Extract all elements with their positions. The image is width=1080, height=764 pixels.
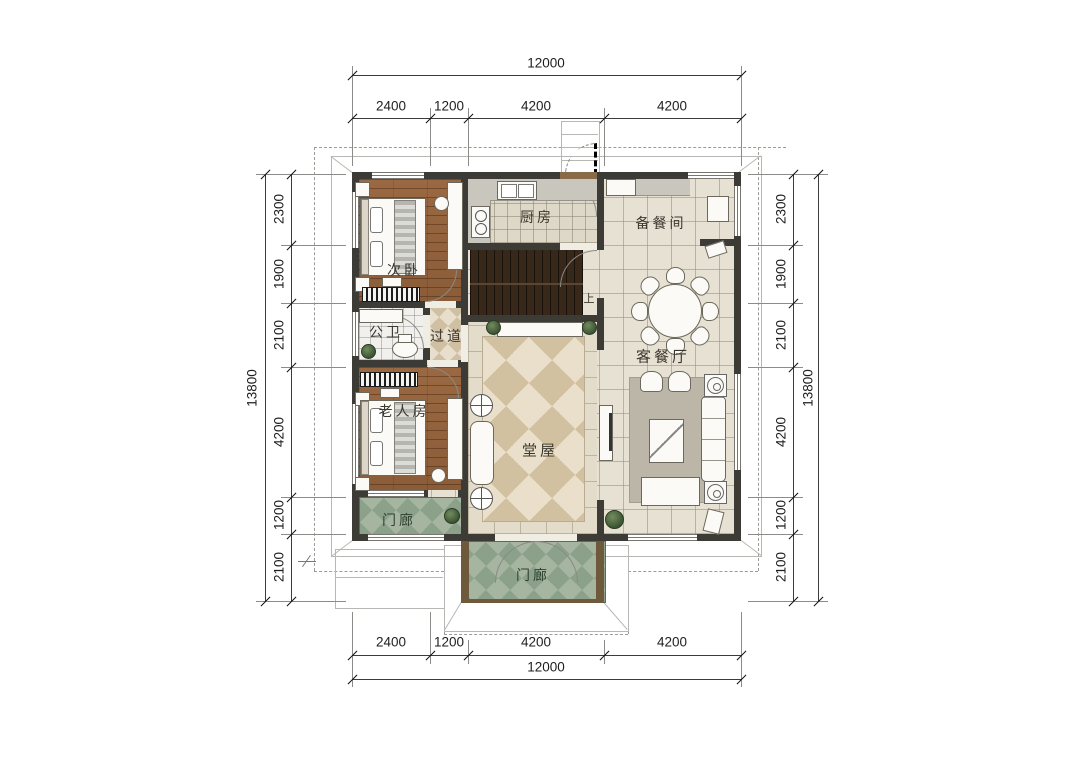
door-opening-bedroom-south [428,360,458,367]
dim-text: 2100 [272,320,287,350]
room-label-ciwo: 次卧 [387,260,421,280]
stove [471,206,490,238]
wall-bath-south [352,360,427,367]
door-opening-bedroom-north [425,301,456,308]
pantry-counter [636,179,690,196]
dim-text: 4200 [521,99,551,114]
dim-text: 2300 [272,194,287,224]
kitchen-sink [497,181,537,200]
hall-door-opening [495,534,577,541]
nightstand [355,182,370,197]
wall-south [444,534,495,541]
dim-text: 1200 [272,500,287,530]
dashed-boundary-bottom-right [628,571,758,572]
level-marker-icon [298,552,316,570]
room-label-tangwu: 堂屋 [522,440,558,461]
dim-text-total-top: 12000 [527,56,565,71]
dim-line-right-total [818,174,819,601]
extension-line [468,640,469,664]
dim-line-right-segments [793,174,794,601]
dim-text: 2100 [272,552,287,582]
speaker-icon [704,374,727,397]
dim-text: 1200 [434,635,464,650]
wall-hall-east [597,500,604,541]
dim-text: 4200 [774,417,789,447]
console-table [497,322,583,337]
floor-plan-canvas: 次卧 厨房 备餐间 公卫 过道 客餐厅 老人房 堂屋 门廊 门廊 上 12000… [0,0,1080,764]
dining-chair [631,302,648,321]
speaker-icon [704,481,727,504]
room-label-menlang-front: 门廊 [516,565,550,585]
dim-line-left-total [265,174,266,601]
wall-hall-east [597,322,604,350]
pantry-cabinet [606,179,636,196]
wall-bedroom-north-south [456,301,461,308]
floor-hall-diamond [482,336,585,522]
window-bedroom-north-top [372,172,424,179]
extension-line [256,174,346,175]
plant-icon [605,510,624,529]
window-porch-left-front [368,534,444,541]
extension-line [352,612,353,687]
dim-text: 2400 [376,635,406,650]
dashed-boundary-top [314,147,786,148]
dim-text: 1900 [272,259,287,289]
plant-icon [486,320,501,335]
window-pantry-top [688,172,734,179]
pantry-fridge [707,196,729,222]
dim-text: 2400 [376,99,406,114]
extension-line [748,497,803,498]
dim-text: 1200 [434,99,464,114]
stool [431,468,446,483]
desk-chair [434,196,449,211]
wall-bedroom-south-south [458,490,461,497]
dim-text-total-bottom: 12000 [527,660,565,675]
stairs-up-label: 上 [584,290,595,306]
porch-front-wall-right [596,541,604,603]
wall-south [697,534,741,541]
dim-text: 4200 [657,635,687,650]
room-label-chufang: 厨房 [520,207,554,227]
wall-bedroom-north-south [352,301,425,308]
wall-bedroom-south-south [424,490,428,497]
console-bench [641,477,700,506]
dim-text: 2100 [774,552,789,582]
window-bedroom-north-west [352,192,359,248]
vanity [359,309,403,323]
coffee-table [649,419,684,463]
extension-line [741,612,742,687]
dim-line-top-segments [352,118,741,119]
crosshair-icon [470,487,493,510]
terrace-outline [335,549,445,609]
wall-kitchen-east [597,172,604,250]
wall-bath-corridor [423,348,430,360]
armchair [640,371,663,392]
dining-chair [666,267,685,284]
room-label-laorenfang: 老人房 [379,401,430,421]
piano-bench [380,388,400,398]
wardrobe [447,182,463,270]
door-opening-bathroom [423,315,430,348]
dim-text: 1200 [774,500,789,530]
dim-text: 1900 [774,259,789,289]
dim-text: 4200 [521,635,551,650]
wall-south [352,534,368,541]
dining-chair [702,302,719,321]
tv [609,413,612,451]
room-label-beicanjian: 备餐间 [636,213,687,233]
extension-line [748,245,803,246]
hall-bench [470,421,494,485]
room-label-kecanting: 客餐厅 [636,346,690,367]
dim-line-top-total [352,75,741,76]
crosshair-icon [470,394,493,417]
dim-text: 4200 [272,417,287,447]
wardrobe [447,398,463,480]
terrace-step-line [335,577,443,578]
window-pantry-east [734,186,741,236]
dim-line-left-segments [291,174,292,601]
wall-bath-corridor [423,308,430,315]
dim-text: 2100 [774,320,789,350]
extension-line [748,303,803,304]
dim-text-total-right: 13800 [801,369,816,407]
armchair [668,371,691,392]
dim-text-total-left: 13800 [245,369,260,407]
dashed-boundary-left [314,147,315,571]
window-bedroom-south-west [352,404,359,484]
plant-icon [582,320,597,335]
plant-icon [444,508,460,524]
wall-stair-east [597,298,604,322]
dim-line-bottom-total [352,679,741,680]
window-living-south [628,534,697,541]
window-bathroom-west [352,312,359,356]
dim-text: 4200 [657,99,687,114]
porch-front-wall-left [461,541,469,603]
dim-text: 2300 [774,194,789,224]
sofa [701,396,726,482]
back-door-opening [560,172,597,179]
extension-line [748,367,803,368]
piano [362,287,420,302]
porch-front-edge [461,599,604,603]
room-label-gongwei: 公卫 [369,322,403,342]
room-label-menlang-left: 门廊 [382,510,416,530]
window-bedroom-south [368,490,424,497]
extension-line [748,534,803,535]
back-step-line [561,134,598,135]
plant-icon [361,344,376,359]
extension-line [256,601,346,602]
extension-line [604,640,605,664]
door-opening-kitchen [560,243,597,250]
nightstand [355,477,370,491]
wall-kitchen-south [468,243,560,250]
dim-line-bottom-segments [352,655,741,656]
wall-bedroom-south-south [352,490,368,497]
room-label-guodao: 过道 [430,326,464,346]
window-living-east [734,374,741,470]
piano [360,372,418,387]
